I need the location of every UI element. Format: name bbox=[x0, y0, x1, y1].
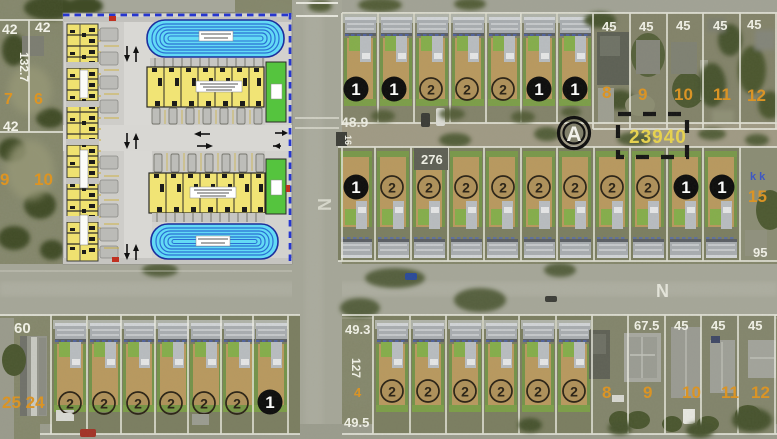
svg-text:42: 42 bbox=[35, 19, 51, 35]
svg-text:132.7: 132.7 bbox=[17, 52, 31, 82]
svg-text:7: 7 bbox=[4, 91, 13, 108]
svg-text:42: 42 bbox=[2, 21, 18, 37]
svg-text:10: 10 bbox=[34, 170, 53, 189]
svg-text:42: 42 bbox=[3, 118, 19, 134]
svg-text:9: 9 bbox=[0, 170, 9, 189]
svg-text:6: 6 bbox=[34, 91, 43, 108]
